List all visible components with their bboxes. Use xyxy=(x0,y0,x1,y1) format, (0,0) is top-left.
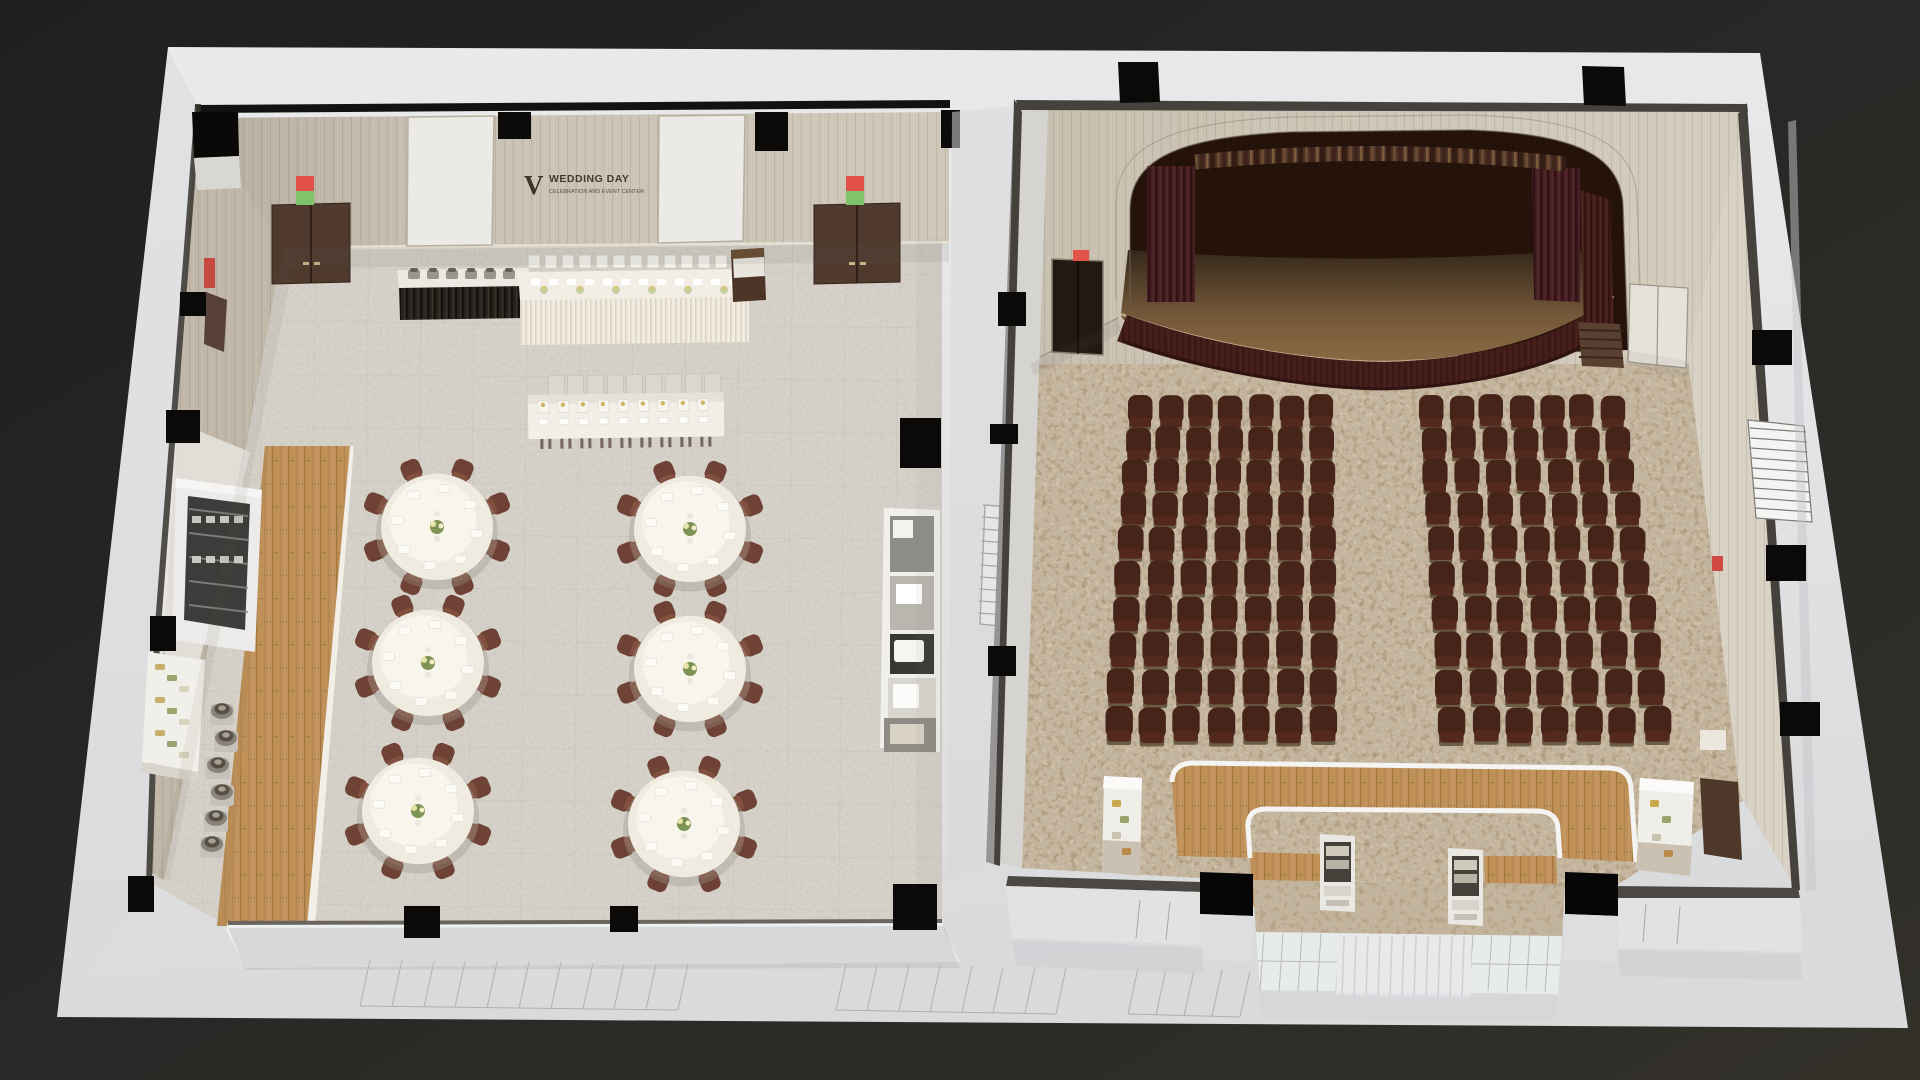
svg-text:V: V xyxy=(524,170,544,200)
svg-text:CELEBRATION AND EVENT CENTER: CELEBRATION AND EVENT CENTER xyxy=(549,189,644,195)
svg-text:WEDDING DAY: WEDDING DAY xyxy=(549,173,629,185)
